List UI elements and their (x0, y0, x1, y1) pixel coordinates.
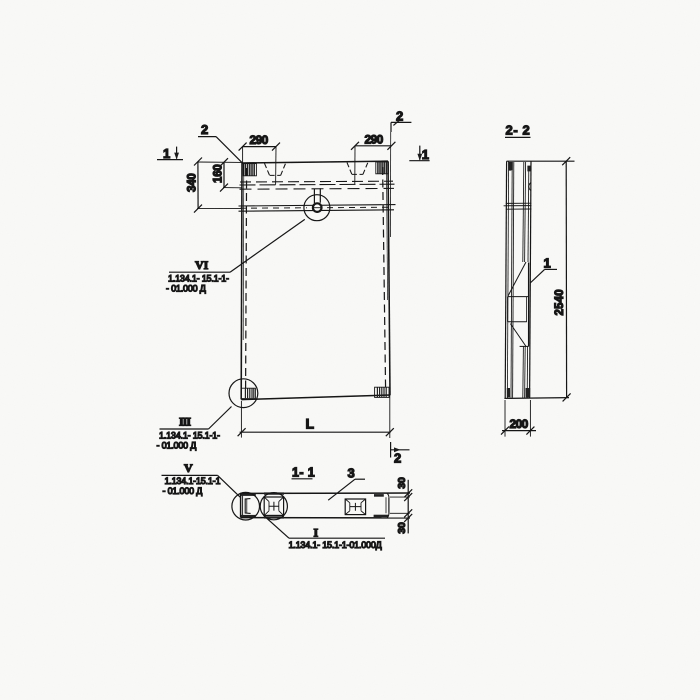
svg-text:200: 200 (510, 417, 529, 431)
svg-text:1: 1 (544, 256, 551, 271)
svg-text:L: L (306, 416, 315, 432)
svg-text:1: 1 (163, 146, 170, 161)
svg-text:340: 340 (187, 173, 199, 192)
svg-text:- 01.000 Д: - 01.000 Д (163, 486, 203, 496)
svg-text:1.134.1- 15.1-1-: 1.134.1- 15.1-1- (168, 274, 229, 284)
svg-text:2: 2 (394, 451, 401, 466)
svg-text:2540: 2540 (554, 289, 566, 315)
svg-text:30: 30 (396, 477, 408, 489)
svg-text:1.134.1- 15.1-1-: 1.134.1- 15.1-1- (159, 431, 220, 441)
svg-text:- 01.000 Д: - 01.000 Д (157, 441, 197, 451)
svg-text:2: 2 (201, 122, 208, 137)
svg-text:160: 160 (213, 164, 225, 183)
svg-text:290: 290 (365, 133, 384, 147)
svg-text:3: 3 (348, 466, 355, 481)
svg-text:2: 2 (396, 109, 403, 124)
svg-text:III: III (179, 415, 191, 429)
svg-text:- 01.000 Д: - 01.000 Д (166, 284, 206, 294)
svg-text:I: I (314, 526, 319, 540)
svg-text:1- 1: 1- 1 (292, 466, 315, 480)
svg-text:1.134.1-15.1-1: 1.134.1-15.1-1 (165, 476, 221, 486)
svg-text:30: 30 (396, 522, 408, 534)
svg-text:1: 1 (422, 147, 429, 162)
svg-text:2- 2: 2- 2 (506, 123, 531, 138)
svg-text:VI: VI (195, 258, 209, 272)
svg-text:V: V (184, 461, 193, 475)
svg-text:290: 290 (250, 133, 269, 147)
svg-text:1.134.1- 15.1-1-01.000Д: 1.134.1- 15.1-1-01.000Д (289, 540, 382, 550)
